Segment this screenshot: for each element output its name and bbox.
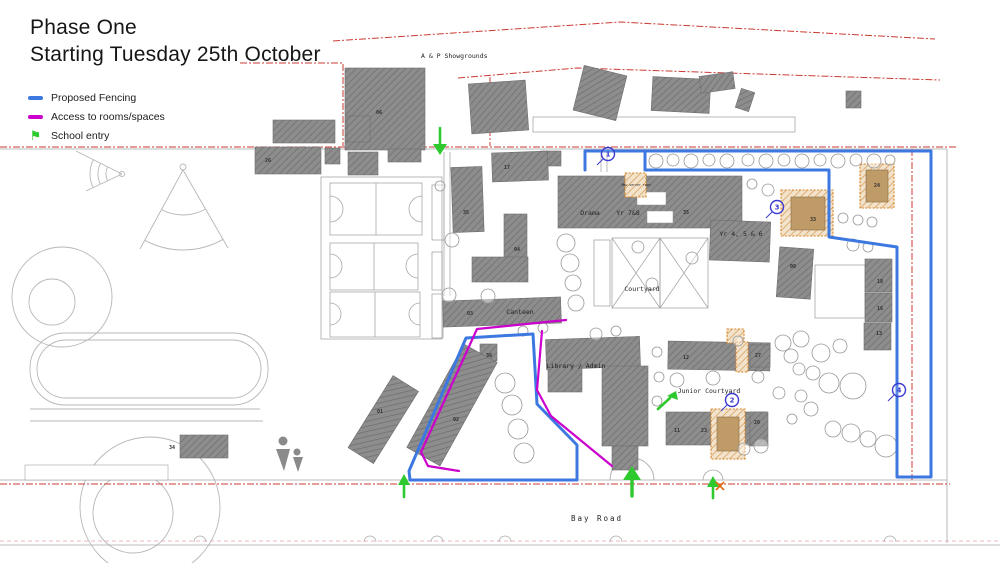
svg-text:06: 06 [376,110,382,116]
svg-text:12: 12 [683,355,689,361]
fencing-line-icon [28,96,43,100]
svg-text:1: 1 [606,151,611,159]
building-33: 33 [781,190,833,236]
svg-text:20: 20 [754,420,760,426]
svg-text:2: 2 [730,397,735,405]
label-yr456: Yr 4, 5 & 6 [719,230,762,238]
svg-text:24: 24 [874,183,880,189]
building-26: 26 [255,147,321,174]
svg-text:16: 16 [877,306,883,312]
legend-item-access: Access to rooms/spaces [28,107,165,126]
svg-text:02: 02 [453,417,459,423]
label-showgrounds: A & P Showgrounds [421,52,488,60]
flag-icon: ⚑ [28,129,43,142]
entry-arrow-southwest [398,474,410,497]
building-24: 24 [860,164,894,208]
entry-arrow-southeast [707,476,719,498]
building-13: 13 [864,323,891,350]
building-01: 01 [348,376,418,464]
label-library-admin: Library / Admin [547,362,606,370]
site-plan-svg: 06 26 35 17 04 [0,0,1000,563]
gate-marker-2: 2 [721,394,739,412]
svg-text:35: 35 [463,210,469,216]
svg-text:33: 33 [810,217,816,223]
figure-icon [279,437,288,446]
svg-text:17: 17 [504,165,510,171]
page-title-line1: Phase One [30,14,321,41]
courtyard-markings [612,238,708,308]
legend-item-entry: ⚑ School entry [28,126,165,145]
field-markings [12,151,444,563]
access-line-icon [28,115,43,119]
building-08: 08 [776,247,813,299]
svg-text:26: 26 [265,158,271,164]
building-yr456 [709,220,770,262]
entry-arrow-main [623,466,641,496]
legend-item-fencing: Proposed Fencing [28,88,165,107]
building-library-admin [546,336,648,470]
svg-text:34: 34 [169,445,175,451]
legend-label-entry: School entry [51,130,109,142]
building-34: 34 [169,435,228,458]
label-35b: 35 [683,210,689,216]
label-junior-courtyard: Junior Courtyard [678,387,741,395]
legend: Proposed Fencing Access to rooms/spaces … [28,88,165,145]
svg-text:3: 3 [775,204,780,212]
label-bay-road: Bay Road [571,514,623,523]
svg-text:04: 04 [514,247,520,253]
label-canteen: Canteen [506,308,533,316]
svg-text:27: 27 [755,353,761,359]
legend-label-access: Access to rooms/spaces [51,111,165,123]
svg-text:08: 08 [790,264,796,270]
building-27: 27 [750,345,770,367]
label-courtyard: Courtyard [624,285,659,293]
label-drama: Drama [580,209,600,217]
building-35: 35 [451,166,484,232]
legend-label-fencing: Proposed Fencing [51,92,136,104]
svg-text:4: 4 [897,387,902,395]
label-yr78: Yr 7&8 [616,209,640,217]
label-new-server-room: New server room [622,183,651,187]
label-canteen-number: 03 [467,311,473,317]
svg-text:23: 23 [701,428,707,434]
svg-text:13: 13 [876,331,882,337]
svg-text:18: 18 [877,279,883,285]
svg-text:11: 11 [674,428,680,434]
buildings: 06 26 35 17 04 [169,65,892,470]
site-plan-page: 06 26 35 17 04 [0,0,1000,563]
building-16: 16 [865,293,892,322]
building-17: 17 [492,151,549,182]
building-18: 18 [865,259,892,292]
svg-text:01: 01 [377,409,383,415]
entry-arrow-north [433,128,447,155]
title-block: Phase One Starting Tuesday 25th October [30,14,321,68]
page-title-line2: Starting Tuesday 25th October [30,41,321,68]
